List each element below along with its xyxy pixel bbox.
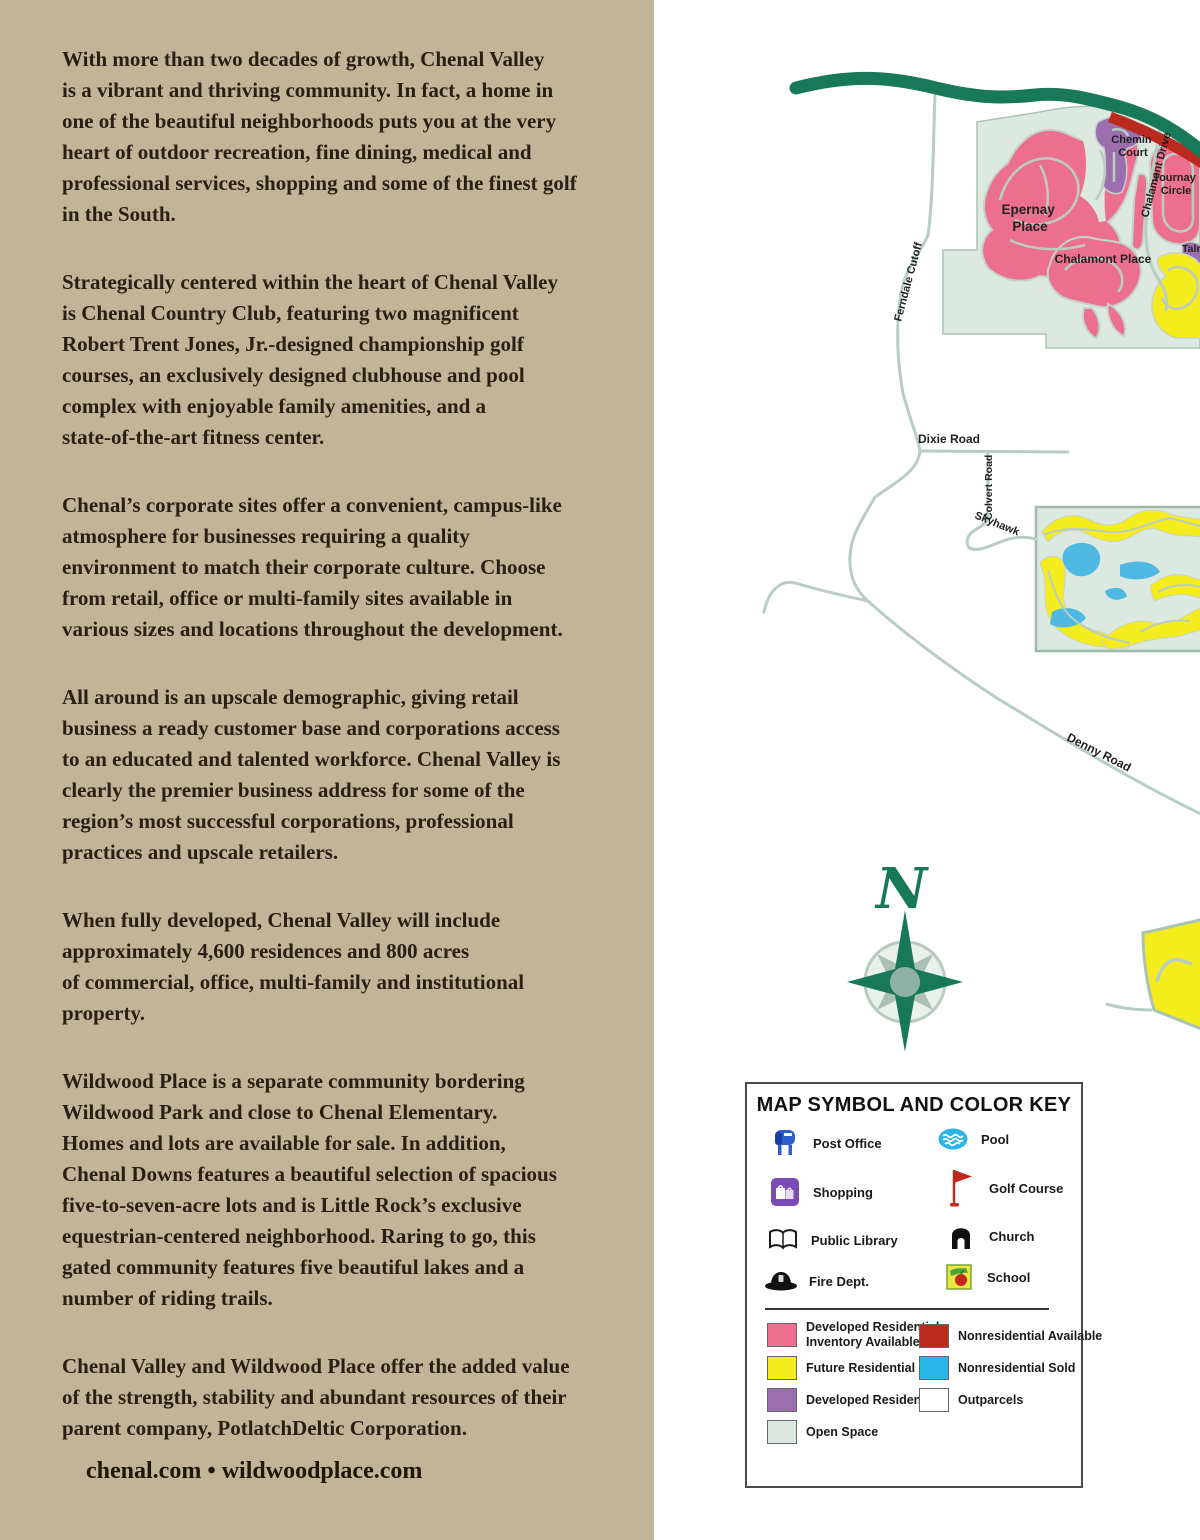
golf-course-icon (943, 1168, 979, 1208)
legend-symbol-row: Golf Course (943, 1168, 1063, 1208)
brochure-page: With more than two decades of growth, Ch… (0, 0, 1200, 1540)
west-branch-road (764, 582, 868, 612)
color-swatch (767, 1388, 797, 1412)
legend-color-row: Outparcels (919, 1388, 1023, 1412)
legend-color-row: Developed Residential Inventory Availabl… (767, 1320, 939, 1350)
color-label: Nonresidential Available (958, 1329, 1102, 1344)
legend-symbol-label: Post Office (813, 1136, 882, 1151)
legend-symbol-row: Shopping (767, 1178, 873, 1206)
legend-symbol-row: Fire Dept. (763, 1270, 869, 1292)
ferndale-cutoff-label: Ferndale Cutoff (892, 241, 925, 323)
shopping-icon (767, 1178, 803, 1206)
compass-rose: N (847, 856, 963, 1052)
color-label: Inventory Available (806, 1335, 920, 1349)
legend-color-row: Nonresidential Available (919, 1324, 1102, 1348)
talm-label: Talm (1182, 243, 1200, 255)
color-swatch (919, 1388, 949, 1412)
body-paragraph: When fully developed, Chenal Valley will… (62, 905, 626, 1029)
color-swatch (767, 1323, 797, 1347)
text-panel: With more than two decades of growth, Ch… (0, 0, 654, 1540)
color-swatch (919, 1356, 949, 1380)
body-paragraph: With more than two decades of growth, Ch… (62, 44, 626, 230)
body-paragraph: All around is an upscale demographic, gi… (62, 682, 626, 868)
color-swatch (767, 1356, 797, 1380)
color-swatch (919, 1324, 949, 1348)
chalamont-place-label: Chalamont Place (1055, 252, 1152, 266)
body-paragraph: Strategically centered within the heart … (62, 267, 626, 453)
legend-symbol-label: Fire Dept. (809, 1274, 869, 1289)
denny-road-label: Denny Road (1065, 730, 1134, 774)
legend-symbol-label: Pool (981, 1132, 1009, 1147)
pool-icon (935, 1128, 971, 1150)
chalamont-place-area (1048, 237, 1141, 307)
legend-symbol-label: Church (989, 1229, 1035, 1244)
color-label: Outparcels (958, 1393, 1023, 1408)
golf-course-parcel (1036, 507, 1200, 651)
color-swatch (767, 1420, 797, 1444)
legend-title: MAP SYMBOL AND COLOR KEY (747, 1094, 1081, 1117)
legend-symbol-row: Church (943, 1222, 1035, 1250)
legend-symbol-row: Pool (935, 1128, 1009, 1150)
legend-symbol-row: School (941, 1264, 1030, 1290)
body-paragraph: Chenal Valley and Wildwood Place offer t… (62, 1351, 626, 1444)
public-library-icon (765, 1228, 801, 1252)
legend-color-row: Open Space (767, 1420, 878, 1444)
color-label: Nonresidential Sold (958, 1361, 1075, 1376)
color-label: Future Residential (806, 1361, 915, 1376)
legend-color-row: Developed Residential (767, 1388, 939, 1412)
legend-symbol-row: Post Office (767, 1128, 882, 1158)
legend-symbol-label: Shopping (813, 1185, 873, 1200)
ferndale-cutoff-road (850, 95, 935, 601)
compass-north-letter: N (874, 856, 929, 922)
colvert-road-label: Colvert Road (983, 455, 995, 520)
skyhawk-label: Skyhawk (973, 510, 1022, 539)
body-paragraph: Wildwood Place is a separate community b… (62, 1066, 626, 1314)
fire-dept-icon (763, 1270, 799, 1292)
legend-symbol-label: Golf Course (989, 1181, 1063, 1196)
map-area: N Chemin Court Tournay Circle Epernay Pl… (654, 0, 1200, 1540)
church-icon (943, 1222, 979, 1250)
legend-symbol-label: Public Library (811, 1233, 898, 1248)
legend-divider (765, 1308, 1049, 1310)
legend-symbol-label: School (987, 1270, 1030, 1285)
color-label: Open Space (806, 1425, 878, 1440)
southeast-parcel (1143, 919, 1200, 1030)
legend-symbol-row: Public Library (765, 1228, 898, 1252)
legend-color-row: Future Residential (767, 1356, 915, 1380)
school-icon (941, 1264, 977, 1290)
legend-color-row: Nonresidential Sold (919, 1356, 1075, 1380)
body-paragraph: Chenal’s corporate sites offer a conveni… (62, 490, 626, 645)
dixie-road (920, 451, 1068, 452)
post-office-icon (767, 1128, 803, 1158)
dixie-road-label: Dixie Road (918, 432, 980, 446)
map-legend: MAP SYMBOL AND COLOR KEY Post Office Sho… (745, 1082, 1083, 1488)
website-urls: chenal.com • wildwoodplace.com (86, 1458, 626, 1485)
